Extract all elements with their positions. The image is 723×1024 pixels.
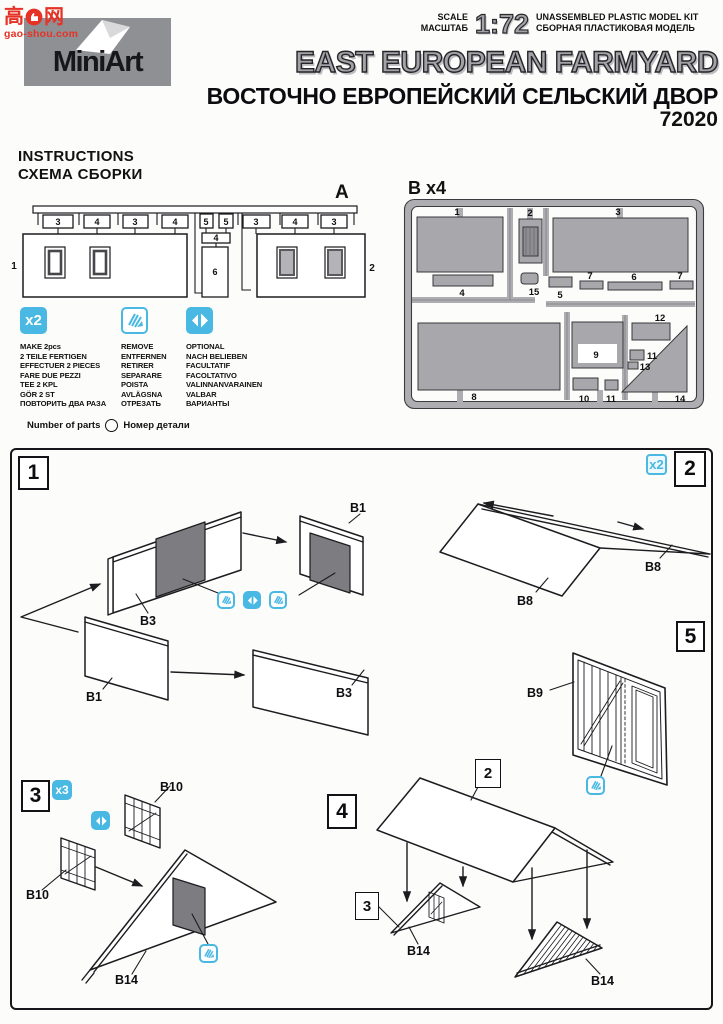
svg-text:4: 4 — [459, 288, 465, 299]
svg-text:4: 4 — [213, 233, 218, 243]
svg-text:2: 2 — [527, 208, 532, 219]
svg-text:11: 11 — [606, 394, 617, 405]
legend-make2-text: MAKE 2pcs2 TEILE FERTIGEN EFFECTUER 2 PI… — [20, 342, 106, 409]
scale-label-en: SCALE — [416, 12, 468, 23]
step-4-number: 4 — [327, 794, 357, 829]
step1-remove-icon — [269, 591, 287, 609]
sprue-a-wall1-number: 1 — [11, 261, 17, 272]
svg-text:5: 5 — [223, 217, 228, 227]
sprue-a-wall-2 — [257, 234, 365, 297]
number-of-parts-legend: Number of parts Номер детали — [27, 419, 190, 432]
part-label: B3 — [140, 614, 156, 628]
svg-text:1: 1 — [454, 207, 460, 218]
part-label: B8 — [517, 594, 533, 608]
svg-text:6: 6 — [631, 272, 636, 283]
svg-text:5: 5 — [557, 290, 563, 301]
svg-text:3: 3 — [253, 217, 258, 227]
make-x2-icon: x2 — [20, 307, 47, 334]
step2-drawing — [440, 503, 710, 596]
svg-text:4: 4 — [172, 217, 177, 227]
scale-label-ru: МАСШТАБ — [416, 23, 468, 34]
part-label: B3 — [336, 686, 352, 700]
step5-drawing — [550, 653, 667, 785]
svg-text:5: 5 — [203, 217, 208, 227]
step-5-number: 5 — [676, 621, 705, 652]
step-1-number: 1 — [18, 456, 49, 490]
svg-text:8: 8 — [471, 392, 476, 403]
number-of-parts-ru: Номер детали — [123, 420, 189, 431]
number-of-parts-en: Number of parts — [27, 420, 100, 431]
svg-text:4: 4 — [292, 217, 297, 227]
svg-text:12: 12 — [655, 313, 666, 324]
step-3-number: 3 — [21, 780, 50, 812]
watermark-char: 高 — [4, 6, 24, 28]
step2-make-x2-icon: x2 — [646, 454, 667, 475]
optional-icon — [186, 307, 213, 334]
part-label: B8 — [645, 560, 661, 574]
part-label: B10 — [160, 780, 183, 794]
sprue-b-label: B x4 — [408, 178, 446, 198]
step3-drawing — [42, 786, 276, 983]
kit-title-en: EAST EUROPEAN FARMYARD — [295, 46, 718, 80]
watermark-char: 网 — [44, 6, 64, 28]
sprue-a-wall2-number: 2 — [369, 263, 375, 274]
svg-text:10: 10 — [579, 394, 590, 405]
step1-drawing — [21, 512, 368, 735]
kit-title-ru: ВОСТОЧНО ЕВРОПЕЙСКИЙ СЕЛЬСКИЙ ДВОР — [207, 83, 718, 110]
watermark-gear-icon — [25, 8, 43, 26]
part-label: B14 — [115, 973, 138, 987]
part-label: B1 — [350, 501, 366, 515]
svg-text:7: 7 — [587, 271, 592, 282]
svg-text:14: 14 — [675, 394, 686, 405]
assembly-line-art — [8, 446, 714, 1010]
part-number-circle-icon — [105, 419, 118, 432]
svg-text:3: 3 — [331, 217, 336, 227]
brand-name: MiniArt — [24, 46, 171, 79]
sprue-a-label: A — [335, 182, 349, 203]
legend-optional-text: OPTIONALNACH BELIEBEN FACULTATIFFACOLTAT… — [186, 342, 262, 409]
watermark: 高 网 gao-shou.com — [4, 6, 78, 40]
step4-roof-callout: 2 — [475, 759, 501, 788]
instruction-sheet: MiniArt 高 网 gao-shou.com SCALE МАСШТАБ 1… — [0, 0, 723, 1024]
kit-type-en: UNASSEMBLED PLASTIC MODEL KIT — [536, 12, 698, 23]
step3-remove-icon — [199, 944, 218, 963]
svg-text:3: 3 — [55, 217, 60, 227]
watermark-site: gao-shou.com — [4, 28, 78, 40]
legend-remove-text: REMOVEENTFERNEN RETIRERSEPARARE POISTAAV… — [121, 342, 167, 409]
step4-gable-callout: 3 — [355, 892, 379, 920]
svg-text:3: 3 — [615, 207, 620, 218]
svg-text:11: 11 — [647, 351, 658, 362]
instructions-en: INSTRUCTIONS — [18, 148, 143, 166]
part-label: B1 — [86, 690, 102, 704]
sprue-a-diagram: A 3 4 3 4 5 5 4 — [5, 175, 395, 305]
scale-block: SCALE МАСШТАБ 1:72 UNASSEMBLED PLASTIC M… — [416, 12, 698, 37]
step3-make-x3-icon: x3 — [52, 780, 72, 800]
svg-text:3: 3 — [132, 217, 137, 227]
kit-type-ru: СБОРНАЯ ПЛАСТИКОВАЯ МОДЕЛЬ — [536, 23, 698, 34]
step3-optional-icon — [91, 811, 110, 830]
part-label: B14 — [591, 974, 614, 988]
remove-icon — [121, 307, 148, 334]
step-2-number: 2 — [674, 451, 706, 487]
step1-remove-icon — [217, 591, 235, 609]
scale-value: 1:72 — [475, 12, 529, 37]
svg-text:7: 7 — [677, 271, 682, 282]
svg-text:13: 13 — [640, 362, 651, 373]
svg-text:6: 6 — [212, 267, 217, 277]
step1-optional-icon — [243, 591, 261, 609]
svg-text:9: 9 — [593, 350, 598, 361]
kit-number: 72020 — [660, 108, 718, 132]
part-label: B14 — [407, 944, 430, 958]
svg-text:4: 4 — [94, 217, 99, 227]
part-label: B10 — [26, 888, 49, 902]
sprue-a-wall-1 — [23, 234, 187, 297]
svg-text:15: 15 — [529, 287, 540, 298]
part-label: B9 — [527, 686, 543, 700]
step5-remove-icon — [586, 776, 605, 795]
sprue-b-diagram: B x4 — [400, 172, 720, 412]
